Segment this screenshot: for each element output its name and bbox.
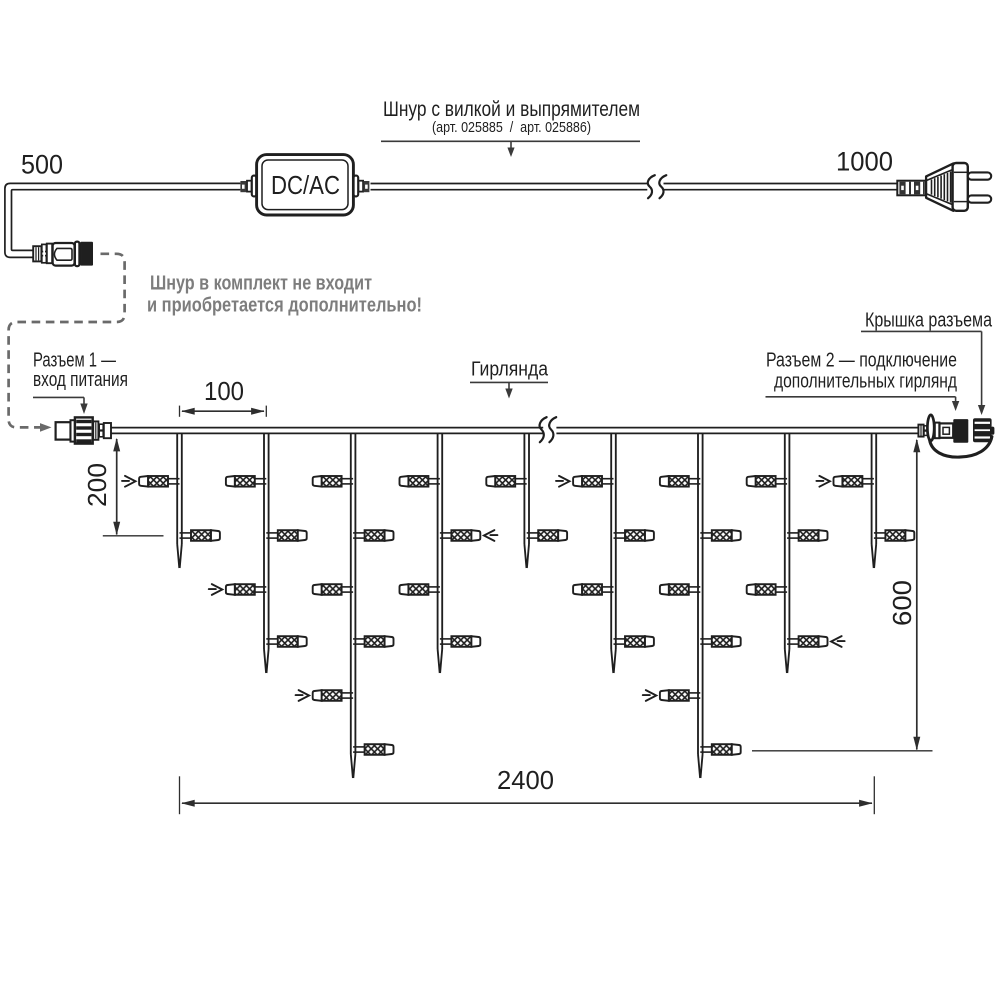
svg-text:Шнур с вилкой и выпрямителем: Шнур с вилкой и выпрямителем (383, 98, 640, 121)
svg-text:дополнительных гирлянд: дополнительных гирлянд (774, 371, 957, 393)
svg-text:600: 600 (887, 580, 917, 626)
svg-text:Шнур в комплект не входит: Шнур в комплект не входит (150, 272, 372, 294)
svg-text:100: 100 (204, 376, 244, 406)
svg-text:Гирлянда: Гирлянда (471, 358, 549, 380)
svg-text:и приобретается дополнительно!: и приобретается дополнительно! (147, 294, 422, 316)
svg-text:вход питания: вход питания (33, 369, 128, 391)
svg-text:DC/AC: DC/AC (271, 170, 340, 200)
svg-text:200: 200 (82, 463, 112, 507)
svg-text:1000: 1000 (836, 147, 893, 177)
svg-text:2400: 2400 (497, 765, 554, 795)
svg-text:(арт. 025885 / арт. 025886): (арт. 025885 / арт. 025886) (432, 119, 591, 136)
svg-text:500: 500 (21, 150, 63, 180)
svg-text:Разъем 2 — подключение: Разъем 2 — подключение (766, 350, 957, 372)
svg-text:Крышка разъема: Крышка разъема (865, 310, 993, 332)
